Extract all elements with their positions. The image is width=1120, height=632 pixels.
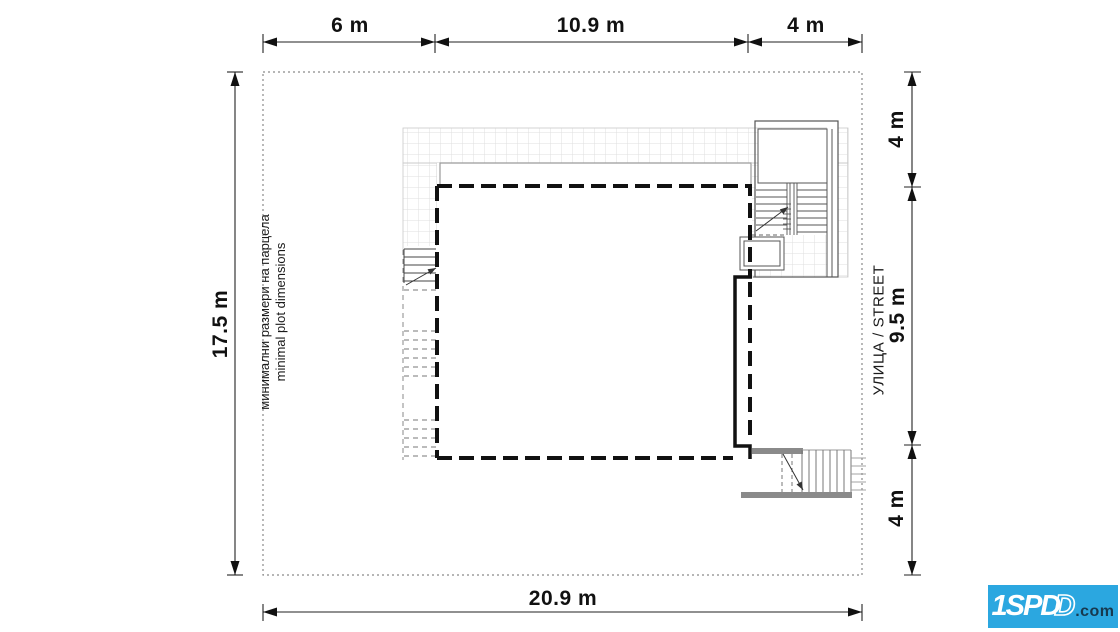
- site-plan-drawing: [0, 0, 1120, 632]
- plot-dimensions-label: минимални размери на парцела minimal plo…: [257, 214, 289, 409]
- logo-text-main: 1SPD: [991, 590, 1059, 623]
- dim-label-right-3: 4 m: [885, 489, 909, 527]
- stair-southeast: [741, 447, 866, 498]
- dim-label-top-3: 4 m: [787, 14, 825, 38]
- roof-eave-line: [437, 163, 752, 460]
- dim-label-left: 17.5 m: [209, 290, 233, 358]
- dim-label-bottom: 20.9 m: [529, 587, 597, 611]
- stair-west: [403, 246, 437, 462]
- dim-label-top-1: 6 m: [331, 14, 369, 38]
- street-label: УЛИЦА / STREET: [871, 265, 888, 396]
- site-plan: 6 m 10.9 m 4 m 20.9 m 17.5 m 4 m 9.5 m 4…: [0, 0, 1120, 632]
- plot-dimensions-label-bg: минимални размери на парцела: [257, 214, 273, 409]
- plot-dimensions-label-en: minimal plot dimensions: [273, 214, 289, 409]
- logo-text-suffix: .com: [1075, 603, 1114, 621]
- dim-label-right-2: 9.5 m: [886, 287, 910, 343]
- dim-label-top-2: 10.9 m: [557, 14, 625, 38]
- dim-label-right-1: 4 m: [885, 110, 909, 148]
- logo-text-outline: D: [1054, 590, 1073, 623]
- watermark-logo: 1SPDD.com: [988, 585, 1118, 628]
